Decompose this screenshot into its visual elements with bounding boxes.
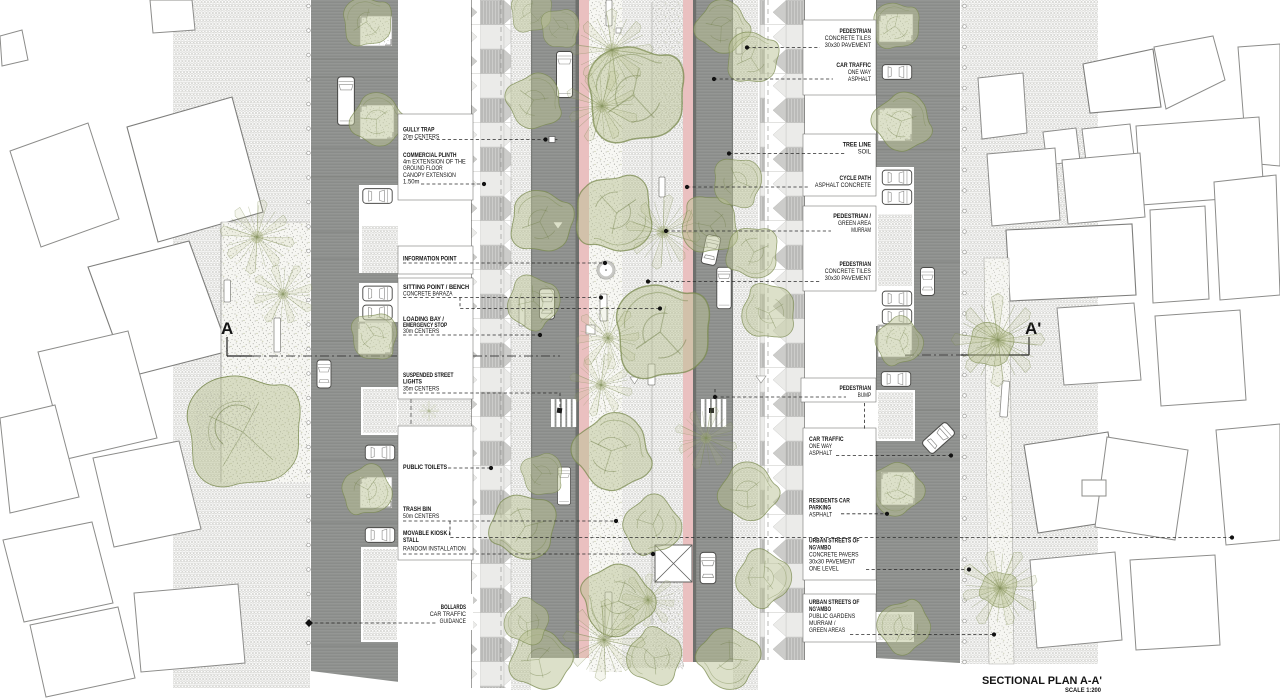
- svg-text:GULLY TRAP: GULLY TRAP: [403, 127, 435, 134]
- svg-text:ASPHALT: ASPHALT: [809, 450, 832, 457]
- svg-text:20m CENTERS: 20m CENTERS: [403, 134, 440, 141]
- svg-text:30x30 PAVEMENT: 30x30 PAVEMENT: [825, 275, 871, 282]
- svg-text:NG'AMBO: NG'AMBO: [809, 545, 831, 552]
- svg-text:PUBLIC GARDENS: PUBLIC GARDENS: [809, 613, 856, 620]
- svg-text:PEDESTRIAN: PEDESTRIAN: [840, 28, 872, 35]
- svg-text:PEDESTRIAN: PEDESTRIAN: [840, 385, 872, 392]
- svg-text:ASPHALT: ASPHALT: [848, 76, 871, 83]
- svg-text:SECTIONAL PLAN A-A': SECTIONAL PLAN A-A': [982, 675, 1102, 687]
- svg-text:TREE LINE: TREE LINE: [843, 142, 872, 149]
- svg-text:CAR TRAFFIC: CAR TRAFFIC: [809, 436, 844, 443]
- svg-text:MURRAM: MURRAM: [851, 227, 871, 234]
- svg-text:CYCLE PATH: CYCLE PATH: [840, 175, 872, 182]
- svg-text:PEDESTRIAN /: PEDESTRIAN /: [833, 213, 871, 220]
- svg-text:ONE WAY: ONE WAY: [809, 443, 832, 450]
- svg-text:URBAN STREETS OF: URBAN STREETS OF: [809, 538, 859, 545]
- svg-text:SCALE 1:200: SCALE 1:200: [1065, 688, 1102, 694]
- svg-text:30x30 PAVEMENT: 30x30 PAVEMENT: [809, 559, 855, 566]
- svg-text:CONCRETE TILES: CONCRETE TILES: [825, 35, 872, 42]
- svg-text:RANDOM INSTALLATION: RANDOM INSTALLATION: [403, 546, 466, 553]
- svg-text:ONE LEVEL: ONE LEVEL: [809, 566, 839, 573]
- svg-text:GUIDANCE: GUIDANCE: [440, 618, 467, 625]
- svg-text:BUMP: BUMP: [858, 392, 872, 399]
- svg-text:STALL: STALL: [403, 537, 419, 544]
- svg-text:INFORMATION POINT: INFORMATION POINT: [403, 255, 457, 262]
- svg-text:TRASH BIN: TRASH BIN: [403, 506, 431, 513]
- svg-text:CONCRETE PAVERS: CONCRETE PAVERS: [809, 552, 859, 559]
- svg-text:50m CENTERS: 50m CENTERS: [403, 513, 440, 520]
- svg-text:30x30 PAVEMENT: 30x30 PAVEMENT: [825, 42, 871, 49]
- svg-text:GREEN AREA: GREEN AREA: [838, 220, 871, 227]
- svg-text:CONCRETE TILES: CONCRETE TILES: [825, 268, 872, 275]
- svg-text:CAR TRAFFIC: CAR TRAFFIC: [430, 611, 466, 618]
- svg-text:30m CENTERS: 30m CENTERS: [403, 328, 440, 335]
- svg-text:CONCRETE BARAZA: CONCRETE BARAZA: [403, 291, 453, 298]
- svg-text:GREEN AREAS: GREEN AREAS: [809, 627, 846, 634]
- svg-text:ONE WAY: ONE WAY: [848, 69, 871, 76]
- svg-text:1.50m: 1.50m: [403, 178, 420, 185]
- svg-text:PEDESTRIAN: PEDESTRIAN: [840, 261, 872, 268]
- svg-text:NG'AMBO: NG'AMBO: [809, 606, 831, 613]
- svg-text:MURRAM /: MURRAM /: [809, 620, 835, 627]
- svg-text:LIGHTS: LIGHTS: [403, 379, 422, 386]
- svg-text:PARKING: PARKING: [809, 505, 831, 512]
- svg-text:MOVABLE KIOSK /: MOVABLE KIOSK /: [403, 530, 450, 537]
- svg-text:ASPHALT: ASPHALT: [809, 512, 832, 519]
- svg-text:35m CENTERS: 35m CENTERS: [403, 386, 440, 393]
- svg-text:CAR TRAFFIC: CAR TRAFFIC: [836, 62, 871, 69]
- svg-text:RESIDENTS CAR: RESIDENTS CAR: [809, 498, 850, 505]
- svg-text:A: A: [221, 319, 233, 338]
- svg-text:ASPHALT CONCRETE: ASPHALT CONCRETE: [815, 182, 871, 189]
- svg-text:SOIL: SOIL: [858, 149, 871, 156]
- svg-text:PUBLIC TOILETS: PUBLIC TOILETS: [403, 464, 447, 471]
- svg-text:URBAN STREETS OF: URBAN STREETS OF: [809, 599, 859, 606]
- svg-text:BOLLARDS: BOLLARDS: [441, 604, 467, 611]
